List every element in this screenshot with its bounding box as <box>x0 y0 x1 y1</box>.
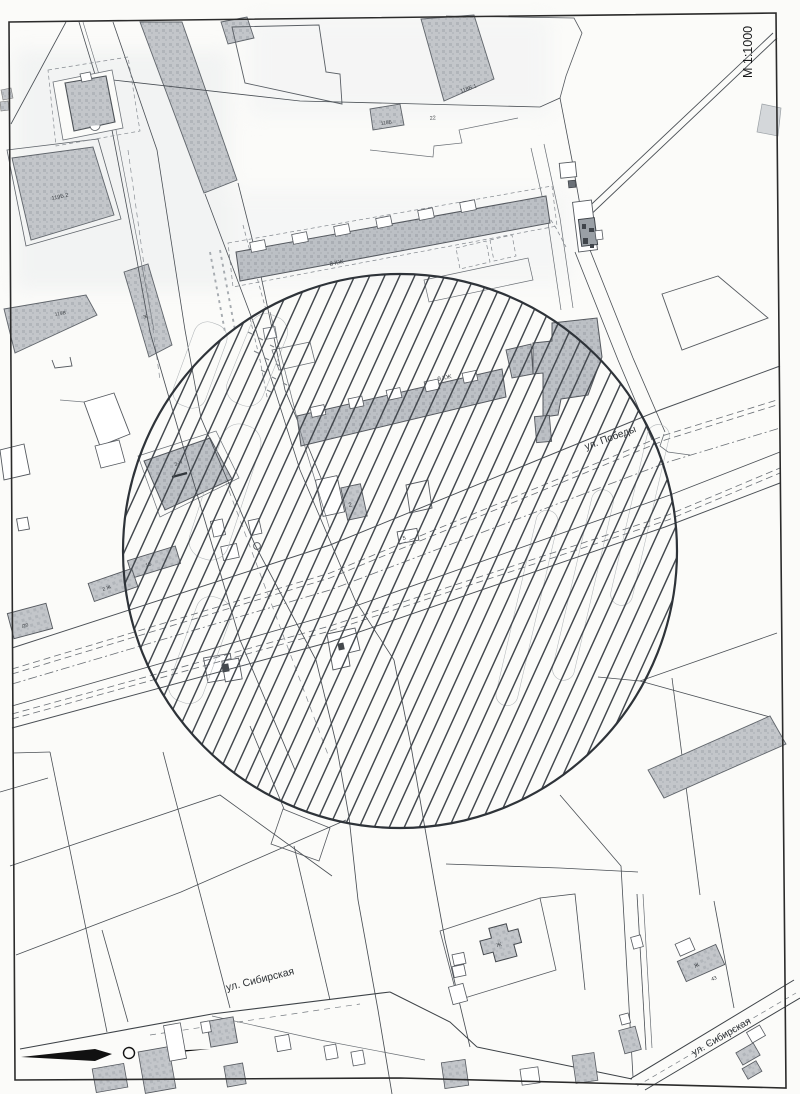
svg-text:М 1:1000: М 1:1000 <box>741 26 755 78</box>
svg-text:22: 22 <box>429 115 436 122</box>
